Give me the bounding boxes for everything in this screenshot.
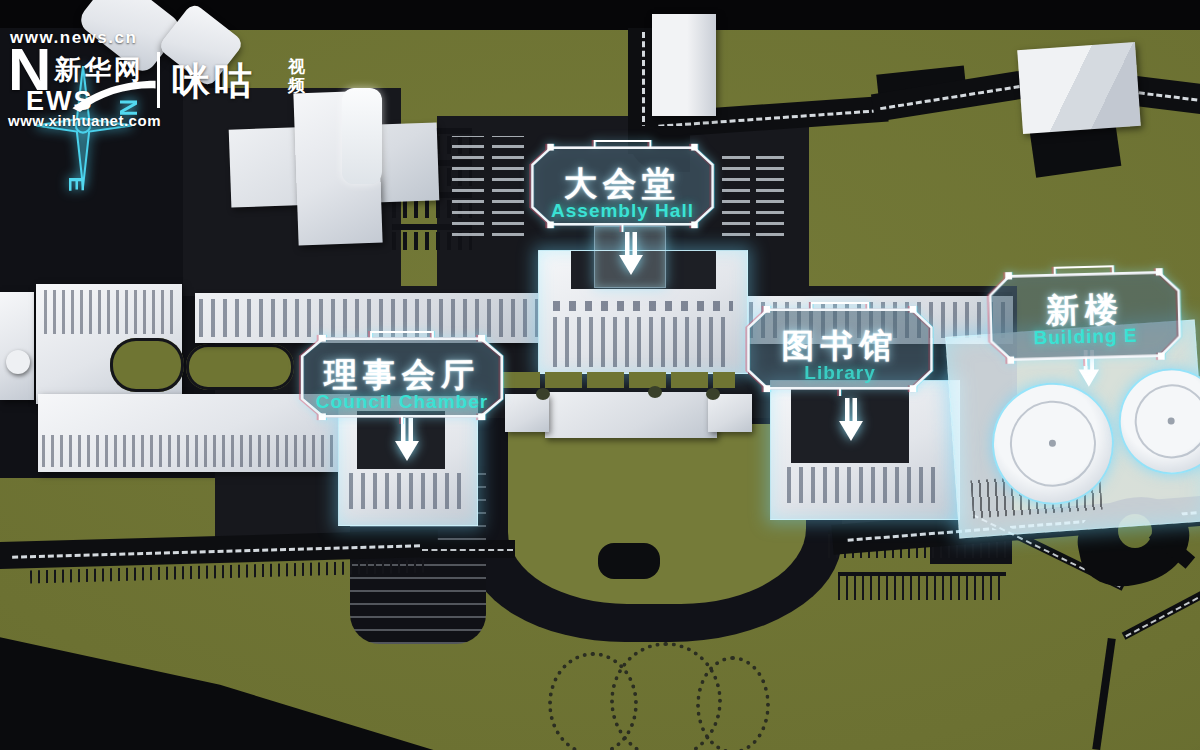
label-assembly-hall-en: Assembly Hall: [525, 200, 720, 222]
parking-ticks-left-b: [492, 136, 524, 236]
library-down-arrow-icon: [832, 398, 868, 452]
assembly-down-arrow-icon: [612, 232, 648, 286]
logo-divider: [157, 52, 160, 108]
terrace-tree-1: [536, 388, 550, 400]
parking-ticks-right-b: [756, 148, 784, 236]
path-br-2: [1122, 588, 1200, 640]
building-e-dome-east: [1115, 365, 1200, 478]
building-top-right: [1017, 42, 1141, 134]
terrace-tree-2: [648, 386, 662, 398]
assembly-frieze: [553, 301, 733, 311]
wing-left-south-windows: [42, 435, 346, 467]
migu-suffix-top: 视: [288, 58, 305, 77]
label-council-chamber-en: Council Chamber: [294, 391, 510, 413]
library-columns: [787, 467, 939, 503]
path-br-3: [1092, 638, 1116, 750]
label-library-en: Library: [741, 362, 939, 384]
xinhua-swoosh-icon: [70, 78, 158, 112]
lawn-horseshoe: [508, 424, 806, 604]
xinhuanet-url: www.xinhuanet.com: [8, 112, 161, 129]
road-parking-stub-dashes: [422, 549, 513, 551]
courtyard-oval-1: [110, 338, 184, 392]
tree-ring-right: [696, 656, 770, 750]
terrace-tree-3: [706, 388, 720, 400]
path-br-2-dashes: [1125, 593, 1200, 638]
parking-ticks-right-a: [722, 148, 750, 236]
label-building-e: 新楼 Building E: [982, 263, 1189, 368]
road-bottom-left-dashes: [12, 544, 420, 558]
council-down-arrow-icon: [388, 418, 424, 472]
wing-left-edge: [0, 292, 34, 400]
compass-east-label: E: [64, 177, 89, 192]
label-library: 图书馆 Library: [741, 302, 939, 396]
label-assembly-hall: 大会堂 Assembly Hall: [525, 140, 720, 232]
assembly-columns: [553, 317, 733, 367]
rotunda-left-small: [6, 350, 30, 374]
terrace-wall: [545, 392, 717, 438]
building-cross-tower: [342, 88, 382, 184]
road-parking-stub: [420, 540, 515, 558]
campus-3d-map-scene: 大会堂 Assembly Hall 理事会厅 Council Chamber 图…: [0, 0, 1200, 750]
hedge-row: [503, 372, 735, 388]
courtyard-oval-2: [186, 344, 294, 390]
label-council-chamber: 理事会厅 Council Chamber: [294, 331, 510, 424]
parking-ticks-left-a: [452, 136, 484, 236]
wing-left-north-roof: [44, 290, 174, 334]
parking-right-comb-b: [838, 572, 1006, 600]
migu-suffix-bottom: 频: [288, 77, 305, 96]
migu-video-logo: 咪咕 视 频: [172, 56, 342, 108]
dome-east-ring: [1132, 382, 1200, 461]
building-tall-north: [652, 14, 716, 116]
pond-oval: [598, 543, 660, 579]
council-columns: [349, 473, 467, 509]
migu-suffix: 视 频: [288, 58, 305, 95]
migu-logo-main: 咪咕: [172, 60, 256, 102]
